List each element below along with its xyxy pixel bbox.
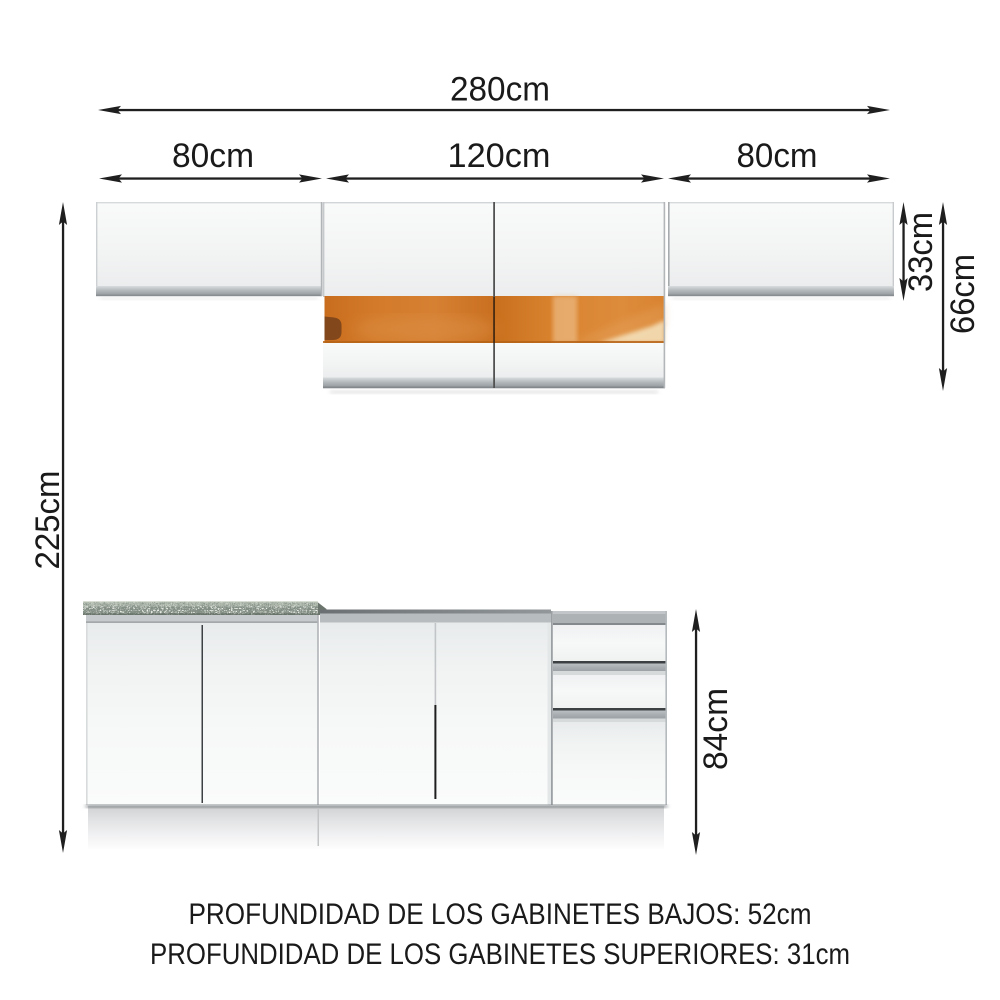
svg-text:84cm: 84cm — [697, 688, 735, 770]
svg-text:80cm: 80cm — [172, 137, 254, 175]
svg-text:225cm: 225cm — [29, 471, 67, 570]
svg-text:80cm: 80cm — [737, 137, 818, 175]
svg-text:120cm: 120cm — [448, 137, 551, 175]
svg-text:PROFUNDIDAD DE LOS GABINETES S: PROFUNDIDAD DE LOS GABINETES SUPERIORES:… — [150, 938, 850, 971]
svg-text:66cm: 66cm — [944, 254, 982, 334]
svg-text:33cm: 33cm — [902, 212, 940, 292]
svg-text:PROFUNDIDAD DE LOS GABINETES B: PROFUNDIDAD DE LOS GABINETES BAJOS: 52cm — [189, 898, 812, 931]
svg-text:280cm: 280cm — [450, 71, 550, 109]
